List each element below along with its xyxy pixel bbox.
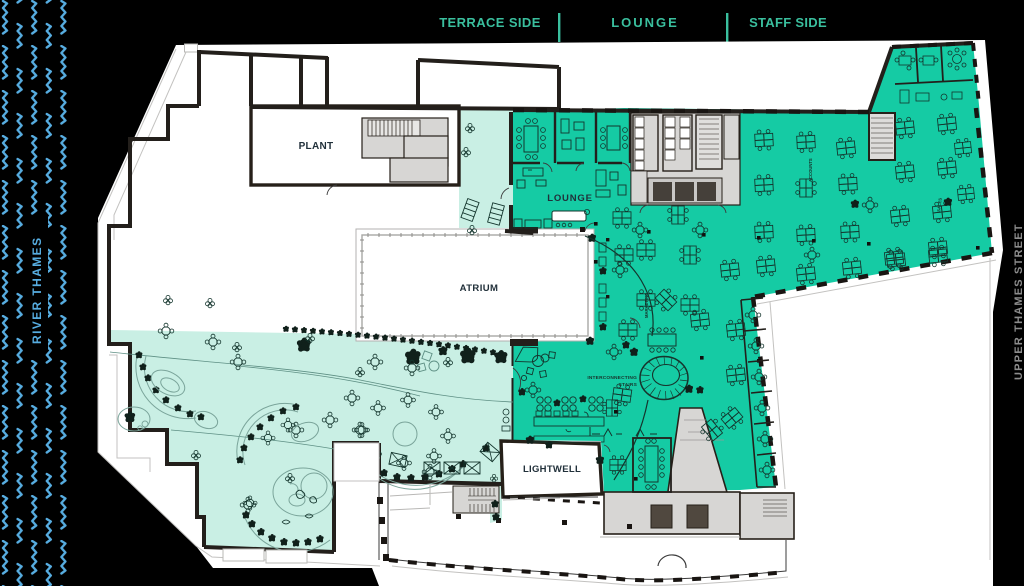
svg-text:LOUNGE: LOUNGE — [547, 193, 592, 204]
svg-text:LOUNGE: LOUNGE — [611, 15, 679, 30]
svg-text:RIVER THAMES: RIVER THAMES — [30, 237, 44, 344]
svg-text:PLANT: PLANT — [299, 141, 334, 152]
svg-text:ATRIUM: ATRIUM — [460, 283, 499, 294]
svg-text:STAFF SIDE: STAFF SIDE — [749, 15, 827, 30]
svg-text:TERRACE SIDE: TERRACE SIDE — [439, 15, 541, 30]
svg-text:ACCOUNTS: ACCOUNTS — [808, 158, 813, 182]
svg-text:INTERCONNECTING: INTERCONNECTING — [587, 375, 637, 381]
svg-text:STAIRS: STAIRS — [619, 382, 638, 388]
svg-text:LIGHTWELL: LIGHTWELL — [523, 464, 581, 475]
svg-text:UPPER THAMES STREET: UPPER THAMES STREET — [1013, 223, 1024, 380]
